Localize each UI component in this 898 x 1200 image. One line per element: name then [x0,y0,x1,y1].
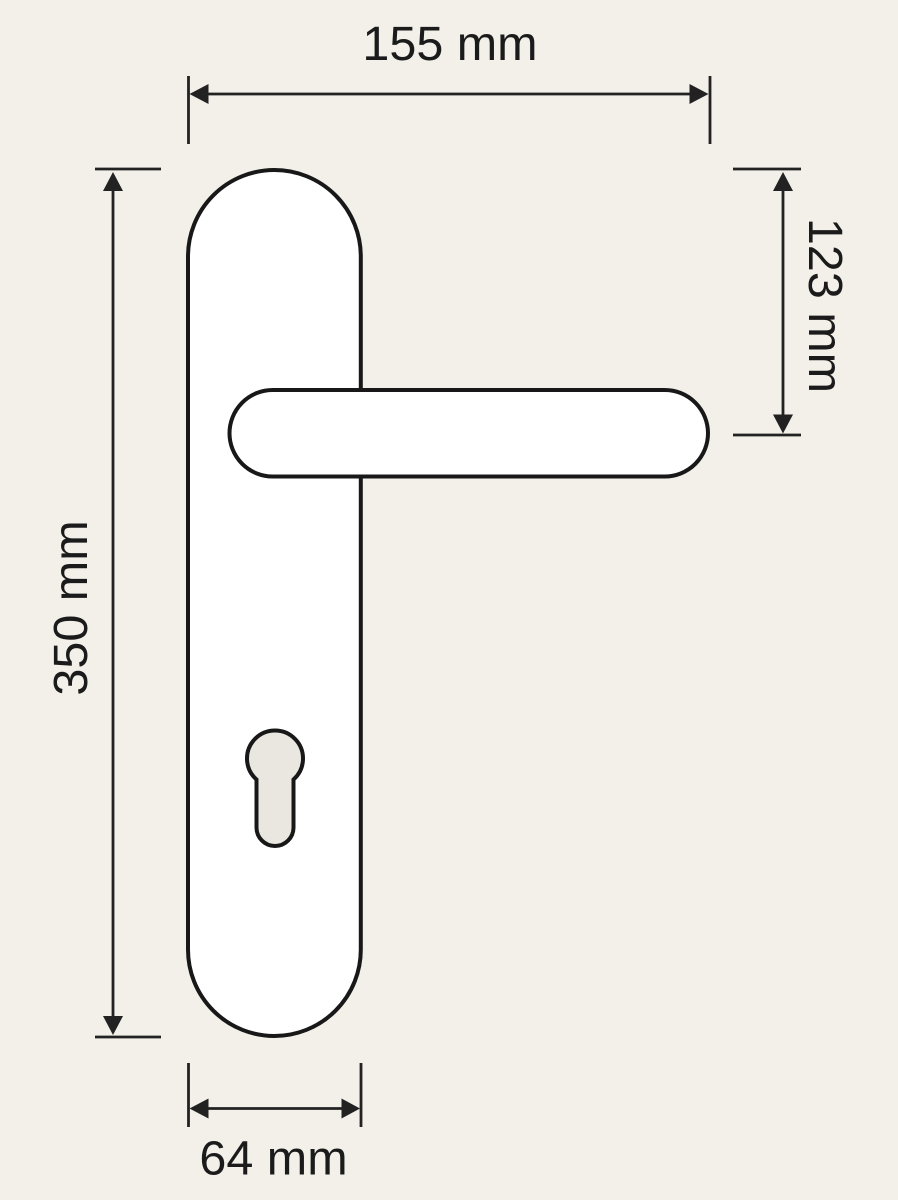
svg-text:350 mm: 350 mm [44,520,98,695]
svg-text:155 mm: 155 mm [362,17,537,71]
svg-text:123 mm: 123 mm [798,218,852,393]
svg-text:64 mm: 64 mm [199,1132,347,1186]
